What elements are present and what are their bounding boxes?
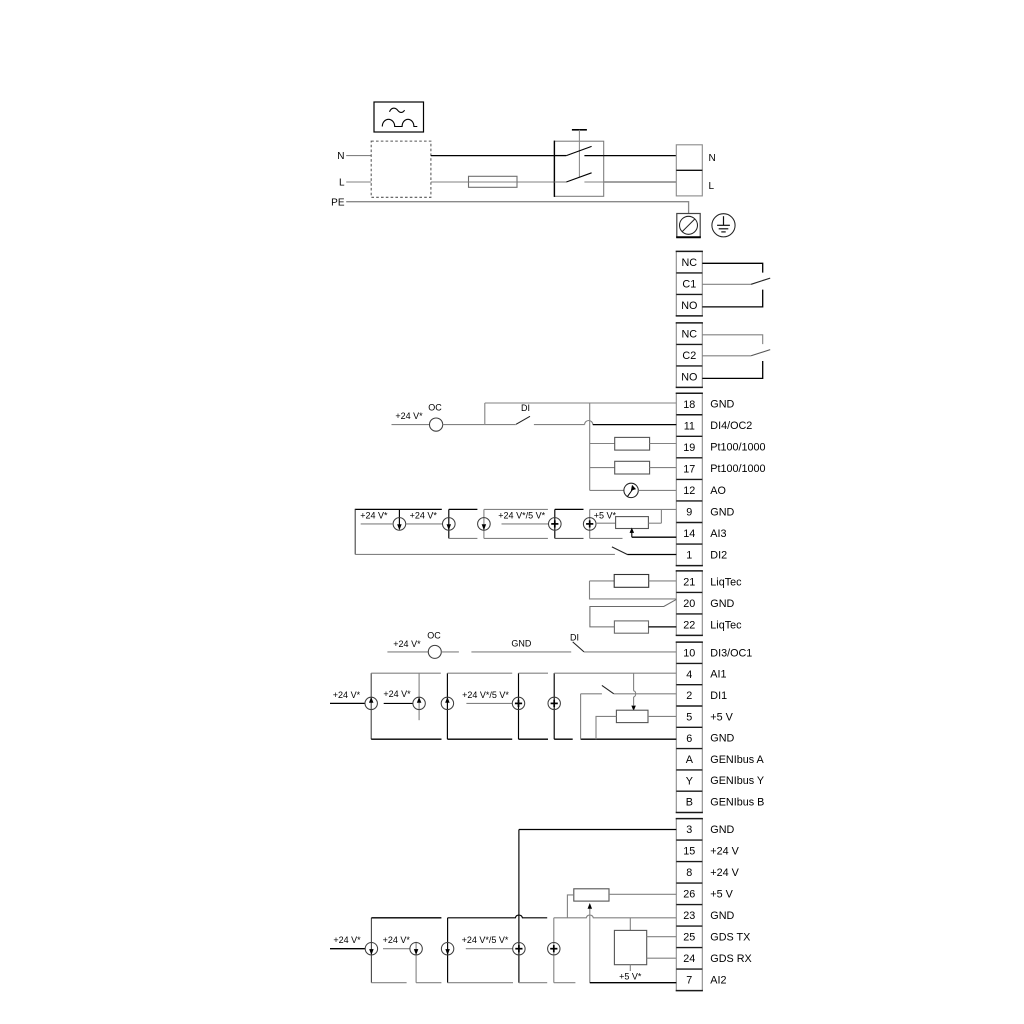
- svg-text:AO: AO: [710, 485, 726, 497]
- svg-text:N: N: [337, 151, 344, 162]
- svg-text:11: 11: [684, 420, 695, 432]
- svg-text:22: 22: [683, 619, 695, 631]
- svg-text:+24 V*: +24 V*: [383, 935, 411, 945]
- svg-text:26: 26: [683, 889, 695, 901]
- svg-text:15: 15: [683, 846, 695, 858]
- svg-text:+24 V*/5 V*: +24 V*/5 V*: [462, 935, 509, 945]
- svg-text:+24 V*: +24 V*: [333, 690, 361, 700]
- svg-text:+24 V*: +24 V*: [360, 510, 388, 520]
- svg-text:21: 21: [683, 576, 695, 588]
- svg-text:24: 24: [683, 953, 695, 965]
- svg-text:C2: C2: [682, 350, 696, 362]
- svg-text:GND: GND: [710, 910, 734, 922]
- svg-text:LiqTec: LiqTec: [710, 619, 742, 631]
- svg-text:3: 3: [686, 824, 692, 836]
- svg-text:+24 V*: +24 V*: [393, 639, 421, 649]
- svg-text:+5 V*: +5 V*: [619, 971, 642, 981]
- svg-text:OC: OC: [428, 403, 442, 413]
- svg-text:17: 17: [683, 463, 695, 475]
- svg-text:9: 9: [686, 507, 692, 519]
- svg-text:6: 6: [686, 733, 692, 745]
- svg-text:Pt100/1000: Pt100/1000: [710, 442, 765, 454]
- svg-text:LiqTec: LiqTec: [710, 576, 742, 588]
- svg-text:8: 8: [686, 867, 692, 879]
- svg-text:C1: C1: [682, 278, 696, 290]
- svg-text:+5 V: +5 V: [710, 888, 733, 900]
- svg-text:10: 10: [683, 648, 695, 660]
- svg-text:GDS TX: GDS TX: [710, 931, 750, 943]
- svg-text:B: B: [686, 797, 693, 809]
- svg-text:PE: PE: [331, 197, 345, 208]
- svg-text:DI2: DI2: [710, 549, 727, 561]
- svg-text:GENIbus A: GENIbus A: [710, 754, 764, 766]
- svg-text:18: 18: [683, 399, 695, 411]
- svg-text:AI2: AI2: [710, 974, 726, 986]
- svg-text:DI: DI: [570, 633, 579, 643]
- svg-text:4: 4: [686, 669, 692, 681]
- svg-text:L: L: [709, 181, 715, 192]
- svg-text:Y: Y: [686, 775, 693, 787]
- svg-text:GENIbus B: GENIbus B: [710, 796, 764, 808]
- svg-text:1: 1: [686, 550, 692, 562]
- svg-text:N: N: [709, 153, 716, 164]
- svg-text:+5 V*: +5 V*: [594, 511, 617, 521]
- svg-text:NC: NC: [681, 328, 697, 340]
- svg-text:2: 2: [686, 690, 692, 702]
- svg-text:L: L: [339, 178, 345, 189]
- svg-text:+24 V*/5 V*: +24 V*/5 V*: [462, 690, 509, 700]
- svg-text:23: 23: [683, 910, 695, 922]
- svg-text:DI3/OC1: DI3/OC1: [710, 647, 752, 659]
- svg-text:12: 12: [683, 485, 695, 497]
- svg-text:14: 14: [683, 528, 695, 540]
- svg-text:5: 5: [686, 711, 692, 723]
- svg-text:GND: GND: [710, 506, 734, 518]
- svg-text:AI3: AI3: [710, 528, 726, 540]
- svg-text:NO: NO: [681, 371, 697, 383]
- svg-text:25: 25: [683, 932, 695, 944]
- svg-text:NO: NO: [681, 300, 697, 312]
- svg-text:GND: GND: [710, 598, 734, 610]
- svg-text:GND: GND: [710, 824, 734, 836]
- svg-text:DI4/OC2: DI4/OC2: [710, 420, 752, 432]
- svg-text:+24 V*: +24 V*: [383, 689, 411, 699]
- svg-text:A: A: [686, 754, 694, 766]
- svg-text:GDS RX: GDS RX: [710, 953, 751, 965]
- svg-text:+24 V*: +24 V*: [333, 935, 361, 945]
- svg-text:19: 19: [683, 442, 695, 454]
- svg-text:GND: GND: [710, 733, 734, 745]
- svg-text:GND: GND: [511, 639, 532, 649]
- svg-text:AI1: AI1: [710, 669, 726, 681]
- svg-text:GENIbus Y: GENIbus Y: [710, 775, 764, 787]
- svg-text:+24 V*: +24 V*: [410, 510, 438, 520]
- svg-text:+24 V: +24 V: [710, 867, 739, 879]
- svg-text:+5 V: +5 V: [710, 711, 733, 723]
- svg-text:GND: GND: [710, 399, 734, 411]
- svg-text:20: 20: [683, 598, 695, 610]
- svg-text:DI: DI: [521, 403, 530, 413]
- svg-text:+24 V*: +24 V*: [395, 411, 423, 421]
- svg-text:OC: OC: [427, 631, 441, 641]
- svg-text:NC: NC: [681, 257, 697, 269]
- svg-text:+24 V: +24 V: [710, 845, 739, 857]
- svg-text:Pt100/1000: Pt100/1000: [710, 463, 765, 475]
- svg-text:7: 7: [686, 975, 692, 987]
- svg-text:DI1: DI1: [710, 690, 727, 702]
- svg-text:+24 V*/5 V*: +24 V*/5 V*: [498, 510, 545, 520]
